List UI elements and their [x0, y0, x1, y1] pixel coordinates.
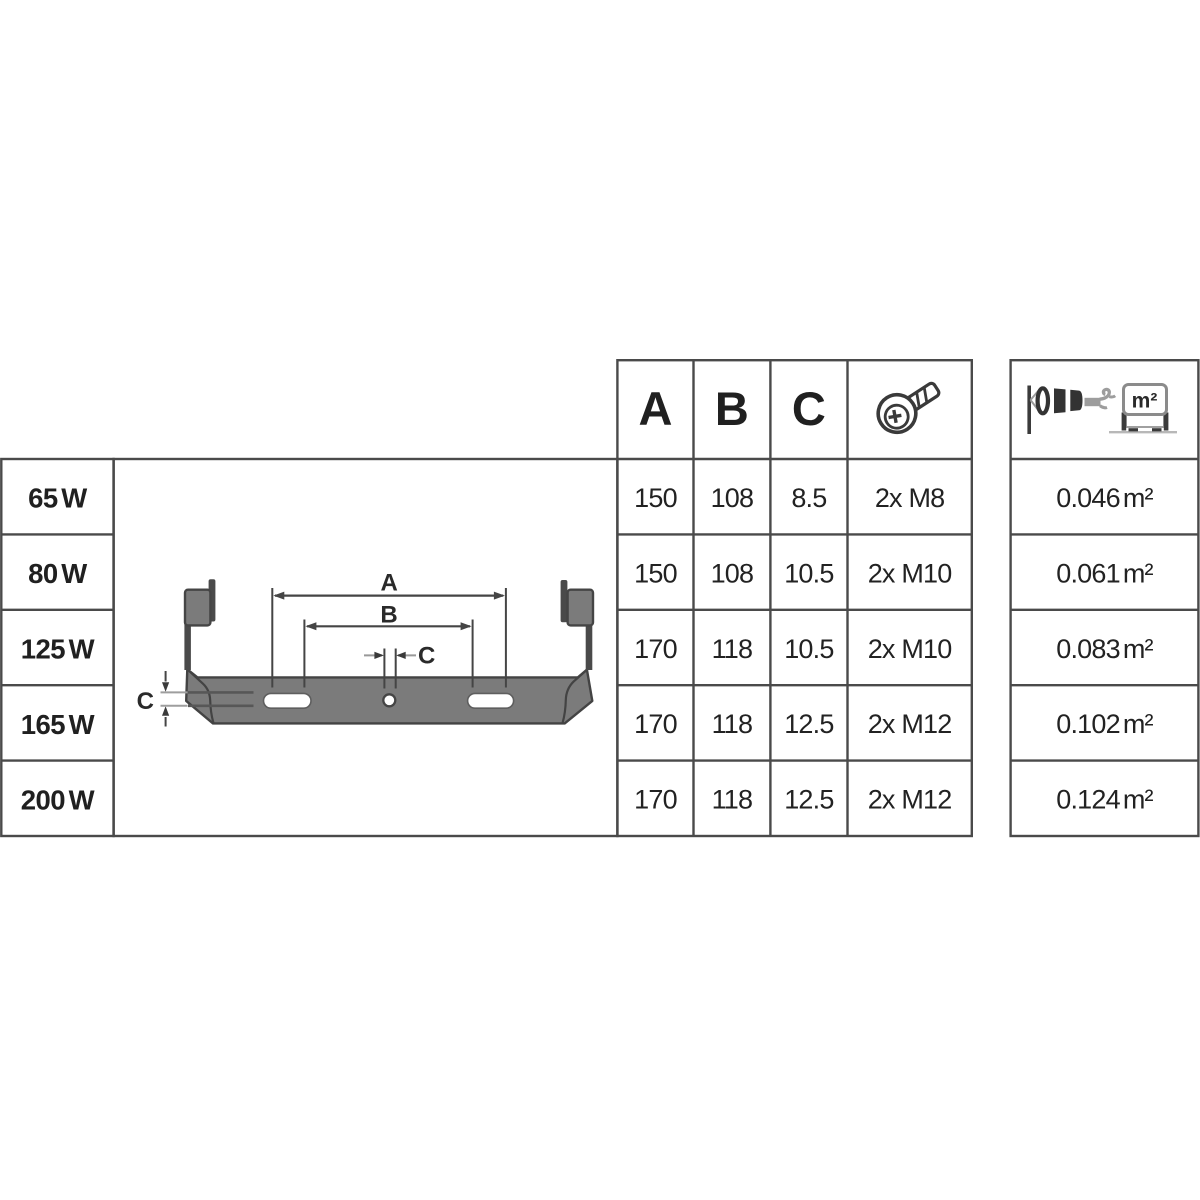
svg-text:C: C	[792, 382, 826, 435]
svg-text:2x M12: 2x M12	[868, 785, 952, 815]
svg-text:65W: 65W	[28, 483, 87, 514]
svg-text:C: C	[137, 688, 154, 715]
svg-text:2x M10: 2x M10	[868, 558, 952, 588]
svg-text:118: 118	[712, 785, 753, 815]
svg-text:C: C	[418, 642, 435, 669]
svg-text:165W: 165W	[21, 709, 95, 740]
svg-text:B: B	[380, 602, 397, 629]
svg-text:0.124m²: 0.124m²	[1056, 785, 1153, 815]
svg-text:118: 118	[712, 709, 753, 739]
svg-text:0.083m²: 0.083m²	[1056, 634, 1153, 664]
svg-text:170: 170	[634, 785, 677, 815]
svg-text:m²: m²	[1132, 390, 1158, 413]
svg-text:12.5: 12.5	[784, 785, 833, 815]
svg-text:A: A	[639, 382, 673, 435]
svg-text:200W: 200W	[21, 784, 95, 815]
svg-text:170: 170	[634, 709, 677, 739]
svg-text:A: A	[381, 570, 398, 597]
svg-text:2x M12: 2x M12	[868, 709, 952, 739]
svg-text:125W: 125W	[21, 634, 95, 665]
svg-text:108: 108	[711, 558, 754, 588]
svg-text:150: 150	[634, 558, 677, 588]
svg-text:0.061m²: 0.061m²	[1056, 558, 1153, 588]
svg-text:B: B	[715, 382, 749, 435]
svg-text:2x M8: 2x M8	[875, 483, 945, 513]
svg-text:150: 150	[634, 483, 677, 513]
svg-text:80W: 80W	[28, 558, 87, 589]
svg-text:10.5: 10.5	[784, 634, 833, 664]
svg-text:10.5: 10.5	[784, 558, 833, 588]
svg-text:0.102m²: 0.102m²	[1056, 709, 1153, 739]
svg-text:12.5: 12.5	[784, 709, 833, 739]
svg-text:0.046m²: 0.046m²	[1056, 483, 1153, 513]
svg-text:8.5: 8.5	[791, 483, 826, 513]
svg-text:2x M10: 2x M10	[868, 634, 952, 664]
svg-text:170: 170	[634, 634, 677, 664]
svg-text:118: 118	[712, 634, 753, 664]
svg-text:108: 108	[711, 483, 754, 513]
